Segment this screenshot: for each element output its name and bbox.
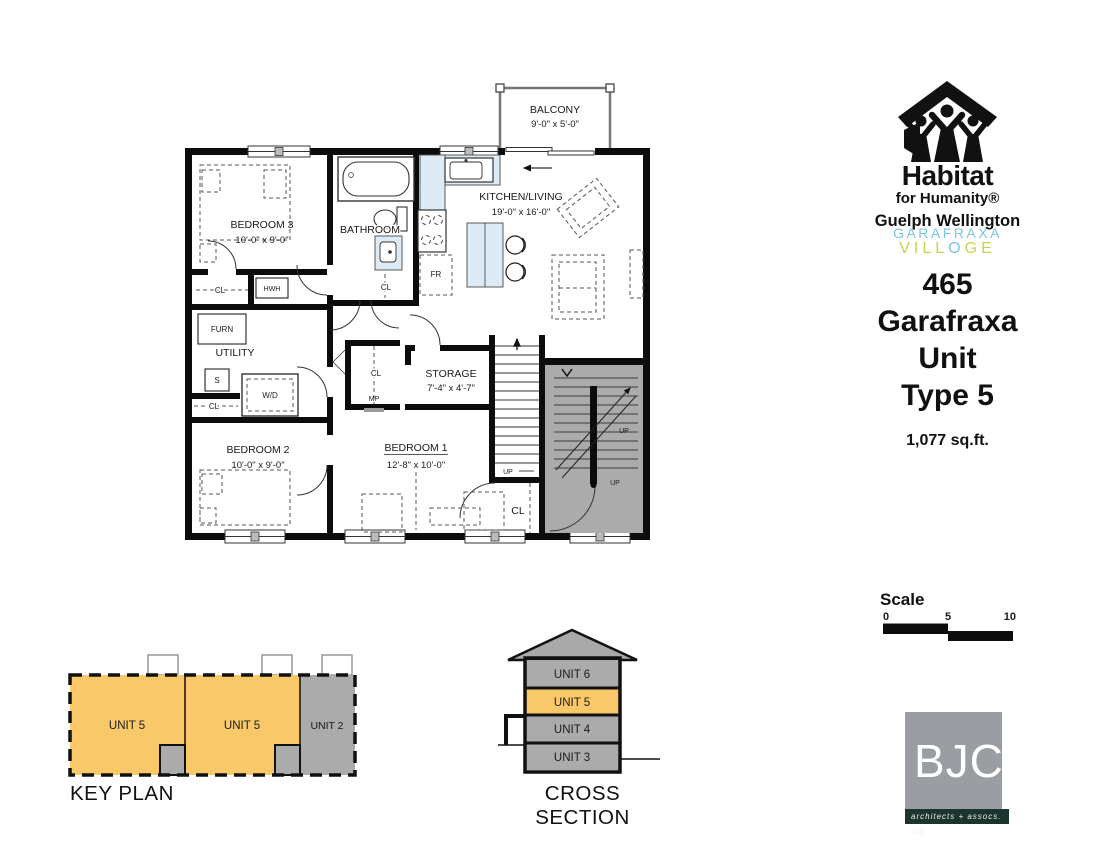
closet-bed2: CL xyxy=(194,402,238,411)
furnace-label: FURN xyxy=(211,325,233,334)
bjc-logo: BJC architects + assocs. inc. xyxy=(905,712,1009,824)
utility-room: FURN UTILITY S W/D xyxy=(198,314,298,416)
scale-bar: 0 5 10 xyxy=(880,608,1020,650)
softener-label: S xyxy=(214,376,219,385)
balcony-label: BALCONY xyxy=(530,104,580,116)
kitchen-living: FR KITCHEN/LIVING 19'-0" x 16'-0" xyxy=(418,155,643,319)
unit-area: 1,077 sq.ft. xyxy=(845,432,1050,450)
scale-tick-0: 0 xyxy=(883,611,889,623)
room-label: BEDROOM 2 xyxy=(226,444,289,456)
room-label: BEDROOM 1 xyxy=(384,442,447,454)
title-line: Garafraxa xyxy=(845,303,1050,340)
balcony: BALCONY 9'-0" x 5'-0" xyxy=(496,84,614,150)
stairwell-up-label: UP xyxy=(619,428,629,435)
village-line2-o: O xyxy=(948,240,964,257)
title-line: Unit xyxy=(845,340,1050,377)
window xyxy=(225,530,285,543)
key-plan: UNIT 5 UNIT 5 UNIT 2 xyxy=(58,645,368,780)
closet-label: CL xyxy=(209,402,220,411)
sheet-title: 465 Garafraxa Unit Type 5 xyxy=(845,266,1050,414)
room-dims: 10'-0" x 9'-0" xyxy=(235,235,288,246)
village-line2-b: GE xyxy=(965,240,996,257)
room-dims: 12'-8" x 10'-0" xyxy=(387,460,445,471)
room-dims: 10'-0" x 9'-0" xyxy=(231,460,284,471)
common-stairwell: UP UP xyxy=(539,335,650,533)
bedroom-3: BEDROOM 3 10'-0" x 9'-0" xyxy=(200,165,294,262)
room-label: STORAGE xyxy=(425,368,476,380)
village-line2: VILLOGE xyxy=(845,240,1050,257)
window xyxy=(248,146,310,157)
habitat-logo-icon xyxy=(890,70,1005,164)
room-label: UTILITY xyxy=(215,347,254,359)
armchair xyxy=(557,178,619,237)
washer-dryer-label: W/D xyxy=(262,391,278,400)
cross-section-unit: UNIT 6 xyxy=(554,669,590,681)
habitat-subline: for Humanity® xyxy=(845,190,1050,207)
key-plan-unit: UNIT 5 xyxy=(109,720,145,732)
panel-label: MP xyxy=(369,396,380,403)
door-swings xyxy=(208,241,440,495)
bedroom-2: BEDROOM 2 10'-0" x 9'-0" xyxy=(200,444,290,525)
window xyxy=(465,530,525,543)
balcony-dims: 9'-0" x 5'-0" xyxy=(531,119,579,130)
fridge-label: FR xyxy=(431,270,442,279)
stair-up-label: UP xyxy=(503,469,513,476)
scale-tick-5: 5 xyxy=(945,611,951,623)
bathroom: BATHROOM CL xyxy=(338,157,414,298)
cross-section-unit: UNIT 3 xyxy=(554,752,590,764)
garafraxa-village-logo: GARAFRAXA VILLOGE xyxy=(845,226,1050,257)
hwh-label: HWH xyxy=(264,286,281,293)
village-line1: GARAFRAXA xyxy=(845,226,1050,240)
closet-hwh: CL HWH xyxy=(196,278,288,298)
key-plan-unit: UNIT 5 xyxy=(224,720,260,732)
room-label: BATHROOM xyxy=(340,224,400,236)
closet-label: CL xyxy=(511,505,525,517)
storage-room: STORAGE 7'-4" x 4'-7" xyxy=(405,345,495,410)
cross-section-caption: CROSS SECTION xyxy=(500,782,665,830)
title-line: Type 5 xyxy=(845,377,1050,414)
closet-label: CL xyxy=(215,286,226,295)
bjc-tagline: architects + assocs. inc. xyxy=(905,809,1009,824)
stairwell-up-label: UP xyxy=(610,480,620,487)
scale-label: Scale xyxy=(880,590,924,610)
key-plan-unit: UNIT 2 xyxy=(310,720,343,732)
room-label: BEDROOM 3 xyxy=(230,219,293,231)
habitat-wordmark: Habitat for Humanity® Guelph Wellington xyxy=(845,162,1050,231)
title-line: 465 xyxy=(845,266,1050,303)
village-line2-a: VILL xyxy=(899,240,948,257)
stair-closet: CL xyxy=(460,477,545,533)
bedroom-1: BEDROOM 1 12'-8" x 10'-0" xyxy=(362,442,504,532)
cross-section: UNIT 6 UNIT 5 UNIT 4 UNIT 3 xyxy=(498,616,663,776)
cross-section-unit: UNIT 5 xyxy=(554,697,590,709)
key-plan-caption: KEY PLAN xyxy=(70,782,174,806)
scale-tick-10: 10 xyxy=(1004,611,1016,623)
closet-label: CL xyxy=(381,283,392,292)
habitat-word: Habitat xyxy=(845,162,1050,190)
room-dims: 7'-4" x 4'-7" xyxy=(427,383,475,394)
cross-section-unit: UNIT 4 xyxy=(554,724,591,736)
room-dims: 19'-0" x 16'-0" xyxy=(492,207,550,218)
unit-floor-plan: BALCONY 9'-0" x 5'-0" xyxy=(178,78,658,548)
floorplan-sheet: { "plan": { "balcony": {"name": "BALCONY… xyxy=(0,0,1100,850)
room-label: KITCHEN/LIVING xyxy=(479,191,562,203)
balcony-sliding-door xyxy=(505,146,595,168)
interior-stair: UP xyxy=(489,335,545,480)
bjc-monogram: BJC xyxy=(905,712,1002,809)
closet-label: CL xyxy=(371,369,382,378)
closet-bed1: CL MP xyxy=(345,340,400,412)
